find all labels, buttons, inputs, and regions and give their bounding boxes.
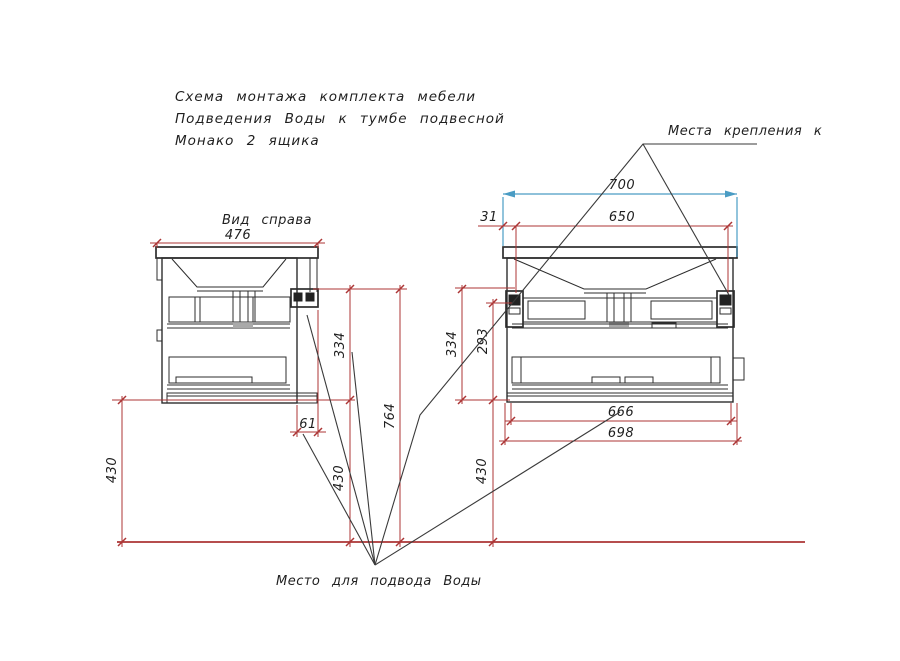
- dim-side-width: 476: [225, 228, 251, 243]
- drawing-sheet: Схема монтажа комплекта мебели Подведени…: [0, 0, 900, 661]
- side-view-label: Вид справа: [222, 213, 312, 228]
- mounting-points-label: Места крепления к: [668, 124, 822, 139]
- title-block: Схема монтажа комплекта мебели Подведени…: [175, 89, 505, 149]
- dim-side-total: 764: [383, 403, 398, 429]
- title-line-3: Монако 2 ящика: [175, 133, 320, 149]
- mounting-callout: Места крепления к: [375, 124, 822, 565]
- dim-front-mount-spacing: 650: [609, 210, 635, 225]
- dim-front-floor-height: 430: [475, 458, 490, 484]
- dim-left-floor-height: 430: [105, 457, 120, 483]
- dim-side-offset: 61: [299, 417, 317, 432]
- dim-front-box-width: 698: [608, 426, 634, 441]
- technical-drawing: Схема монтажа комплекта мебели Подведени…: [0, 0, 900, 661]
- water-supply-label: Место для подвода Воды: [276, 574, 482, 589]
- dimension-ticks: [118, 222, 741, 546]
- front-view-dimensions: 650 31 334 293 430 666 698: [445, 210, 742, 547]
- dim-front-edge-offset: 31: [480, 210, 498, 225]
- dim-front-334: 334: [445, 331, 460, 357]
- title-line-2: Подведения Воды к тумбе подвесной: [175, 111, 505, 127]
- dim-side-430: 430: [332, 465, 347, 491]
- side-view-dimensions: 476 430 334 430 764 61: [105, 228, 407, 547]
- dim-side-334: 334: [333, 332, 348, 358]
- title-line-1: Схема монтажа комплекта мебели: [175, 89, 476, 105]
